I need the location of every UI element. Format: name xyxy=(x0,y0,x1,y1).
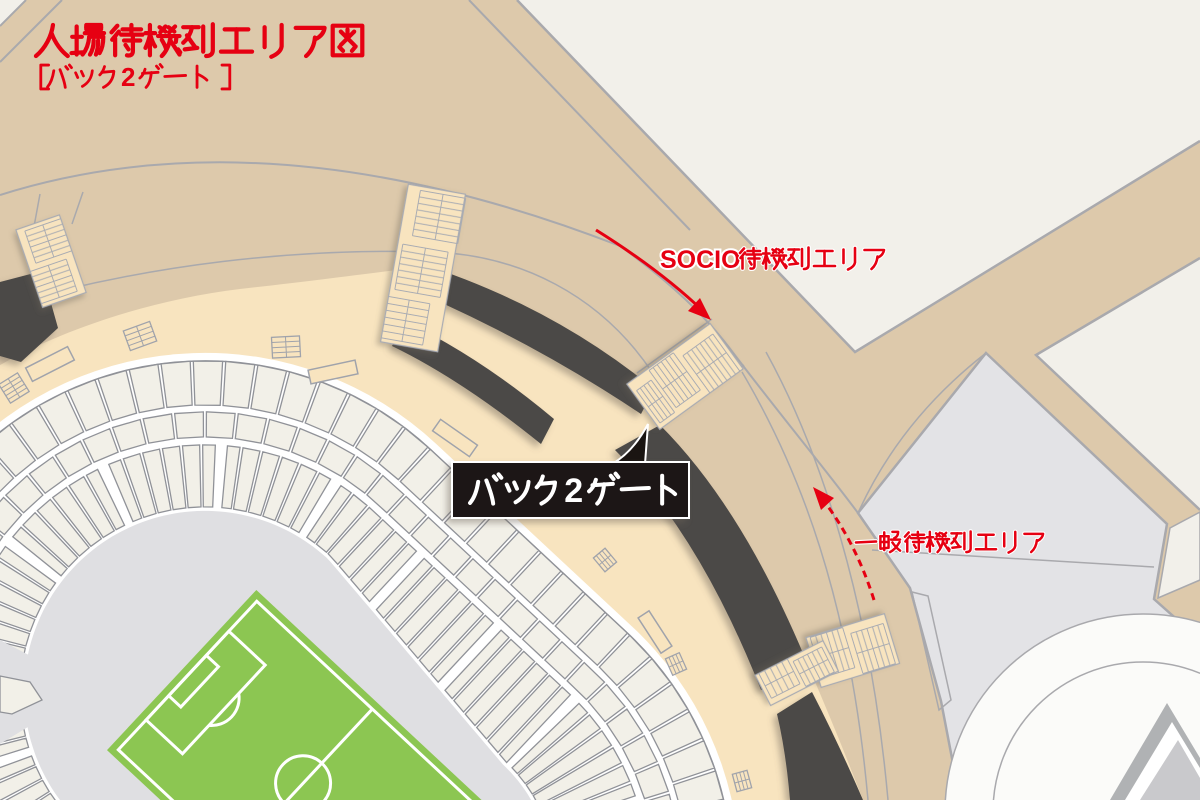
svg-text:2: 2 xyxy=(564,472,583,510)
svg-text:2: 2 xyxy=(121,62,135,92)
svg-text:SOCIO: SOCIO xyxy=(660,246,741,274)
